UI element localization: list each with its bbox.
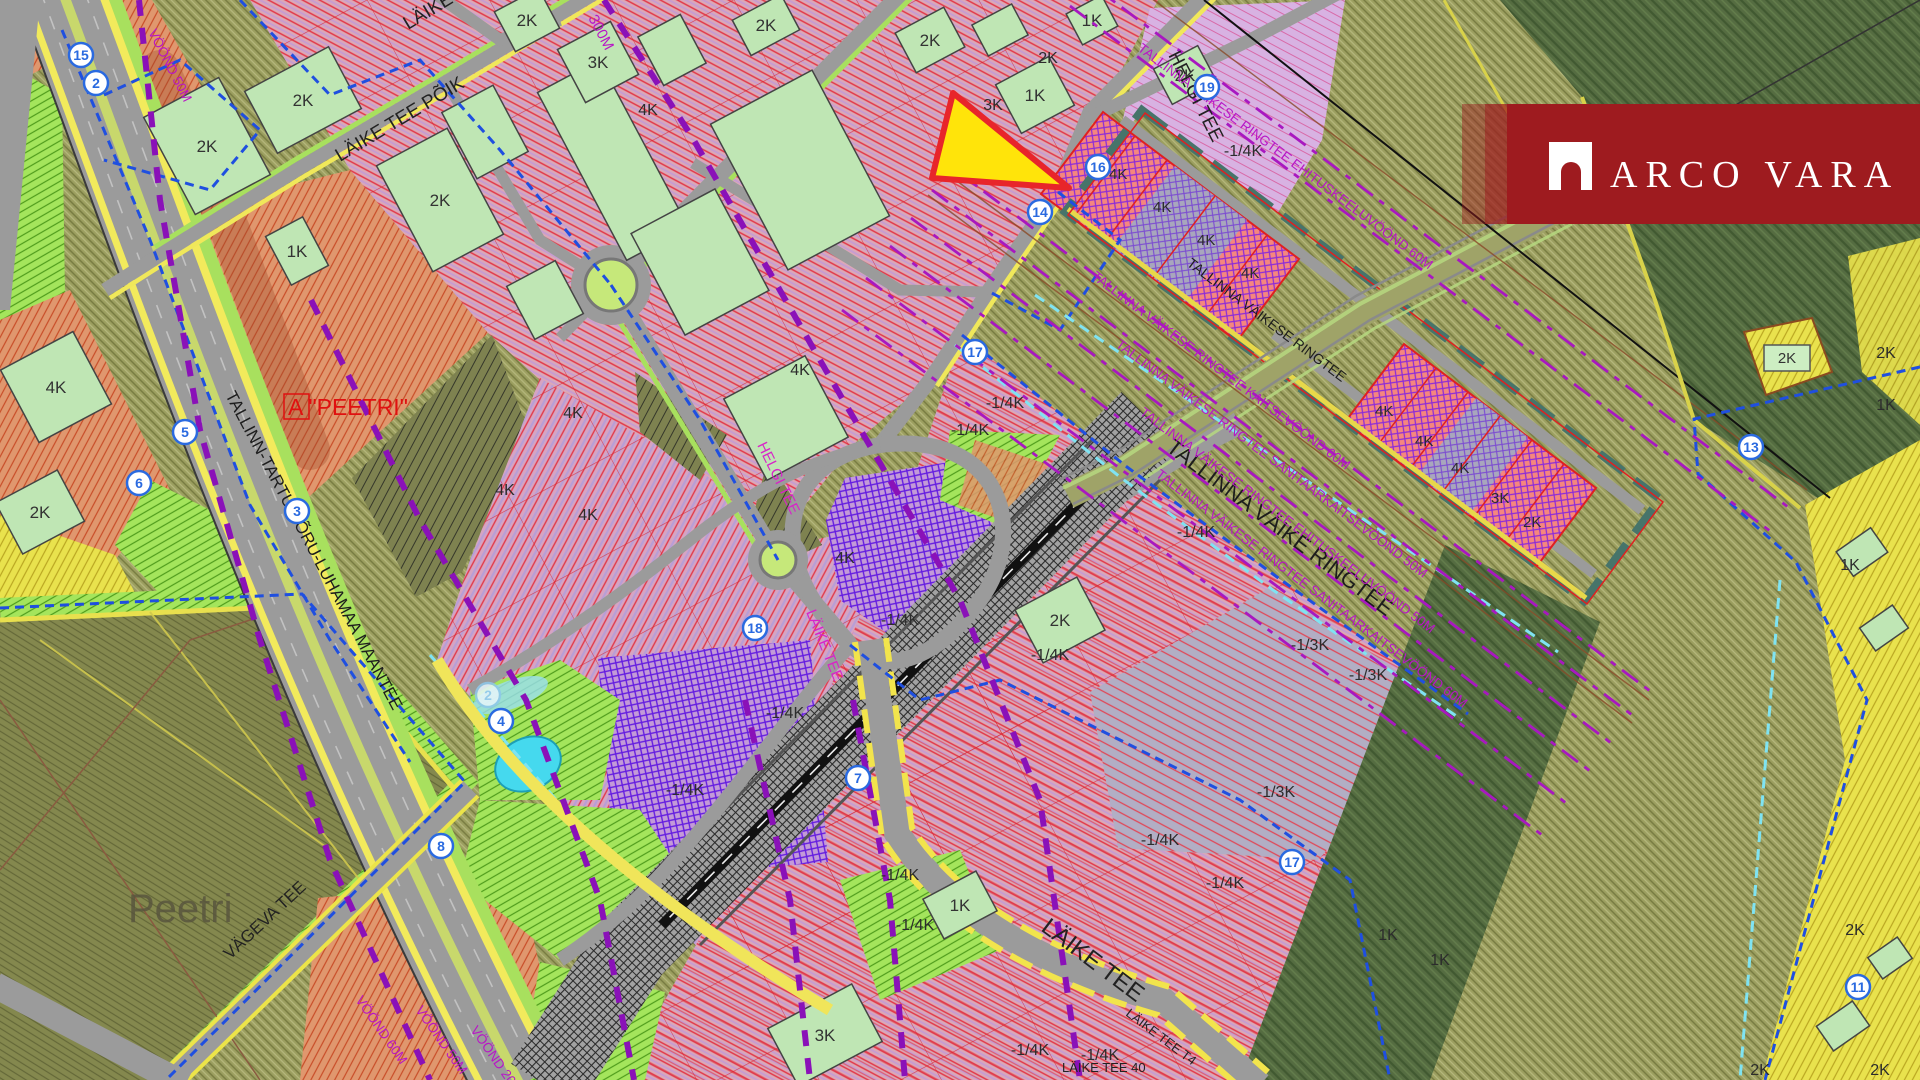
svg-text:2K: 2K — [430, 191, 451, 210]
svg-text:-1/4K: -1/4K — [881, 867, 920, 884]
svg-text:2K: 2K — [1523, 514, 1541, 531]
svg-text:2K: 2K — [1038, 50, 1058, 67]
svg-text:2K: 2K — [1750, 1062, 1770, 1079]
svg-text:1K: 1K — [287, 242, 308, 261]
svg-text:2: 2 — [484, 687, 492, 703]
svg-text:4K: 4K — [1451, 460, 1469, 477]
svg-text:-1/4K: -1/4K — [881, 612, 920, 629]
svg-text:17: 17 — [967, 344, 983, 360]
svg-text:13: 13 — [1743, 439, 1759, 455]
svg-text:5: 5 — [181, 424, 189, 440]
svg-text:6: 6 — [135, 475, 143, 491]
svg-text:Peetri: Peetri — [128, 887, 233, 931]
svg-text:4K: 4K — [790, 362, 810, 379]
svg-text:2: 2 — [92, 75, 100, 91]
svg-text:-1/3K: -1/3K — [1349, 667, 1388, 684]
svg-text:7: 7 — [854, 770, 862, 786]
svg-text:-1/4K: -1/4K — [951, 422, 990, 439]
svg-text:4: 4 — [497, 713, 505, 729]
svg-text:2K: 2K — [1870, 1062, 1890, 1079]
svg-text:16: 16 — [1090, 159, 1106, 175]
svg-text:-1/4K: -1/4K — [1177, 524, 1216, 541]
svg-text:-1/4K: -1/4K — [1081, 1047, 1120, 1064]
svg-text:-1/4K: -1/4K — [986, 395, 1025, 412]
svg-text:2K: 2K — [1778, 350, 1796, 367]
svg-text:18: 18 — [747, 620, 763, 636]
svg-text:4K: 4K — [495, 482, 515, 499]
svg-text:2K: 2K — [197, 137, 218, 156]
svg-text:2K: 2K — [1050, 611, 1071, 630]
svg-text:3K: 3K — [983, 97, 1003, 114]
svg-text:2K: 2K — [30, 503, 51, 522]
svg-text:4K: 4K — [1415, 433, 1433, 450]
svg-text:1K: 1K — [950, 896, 971, 915]
svg-text:1K: 1K — [1082, 11, 1103, 30]
svg-text:4K: 4K — [1241, 265, 1259, 282]
svg-text:15: 15 — [73, 47, 89, 63]
svg-text:-1/3K: -1/3K — [1291, 637, 1330, 654]
svg-text:3K: 3K — [1491, 490, 1509, 507]
svg-text:-1/4K: -1/4K — [896, 917, 935, 934]
svg-text:-1/4K: -1/4K — [1224, 143, 1263, 160]
svg-text:1K: 1K — [1840, 557, 1860, 574]
svg-text:4K: 4K — [835, 550, 855, 567]
svg-text:-1/4K: -1/4K — [1206, 875, 1245, 892]
svg-text:1K: 1K — [1025, 86, 1046, 105]
svg-text:4K: 4K — [563, 405, 583, 422]
svg-text:4K: 4K — [1153, 199, 1171, 216]
svg-text:3K: 3K — [815, 1026, 836, 1045]
svg-text:-1/4K: -1/4K — [1141, 832, 1180, 849]
svg-text:4K: 4K — [46, 378, 67, 397]
svg-text:ARCO VARA: ARCO VARA — [1610, 154, 1899, 196]
svg-text:2K: 2K — [517, 11, 538, 30]
svg-text:3K: 3K — [588, 53, 609, 72]
svg-text:-1/4K: -1/4K — [666, 782, 705, 799]
svg-text:3: 3 — [293, 503, 301, 519]
svg-text:2K: 2K — [920, 31, 941, 50]
svg-text:A "PEETRI": A "PEETRI" — [288, 394, 408, 420]
svg-text:2K: 2K — [756, 16, 777, 35]
svg-text:-1/4K: -1/4K — [1011, 1042, 1050, 1059]
svg-text:4K: 4K — [1197, 232, 1215, 249]
svg-text:2K: 2K — [1845, 922, 1865, 939]
svg-text:-1/3K: -1/3K — [1257, 784, 1296, 801]
svg-text:11: 11 — [1851, 979, 1866, 995]
svg-text:4K: 4K — [578, 507, 598, 524]
svg-text:1K: 1K — [1876, 397, 1896, 414]
svg-text:19: 19 — [1199, 79, 1215, 95]
svg-text:14: 14 — [1032, 204, 1048, 220]
svg-text:4K: 4K — [1375, 403, 1393, 420]
svg-text:-1/4K: -1/4K — [1031, 647, 1070, 664]
svg-text:-1/4K: -1/4K — [766, 705, 805, 722]
svg-text:8: 8 — [437, 838, 445, 854]
svg-text:17: 17 — [1284, 854, 1300, 870]
svg-text:2K: 2K — [1876, 345, 1896, 362]
svg-text:1K: 1K — [1430, 952, 1450, 969]
svg-text:4K: 4K — [638, 102, 658, 119]
svg-text:2K: 2K — [293, 91, 314, 110]
svg-text:4K: 4K — [1109, 166, 1127, 183]
svg-text:1K: 1K — [1378, 927, 1398, 944]
